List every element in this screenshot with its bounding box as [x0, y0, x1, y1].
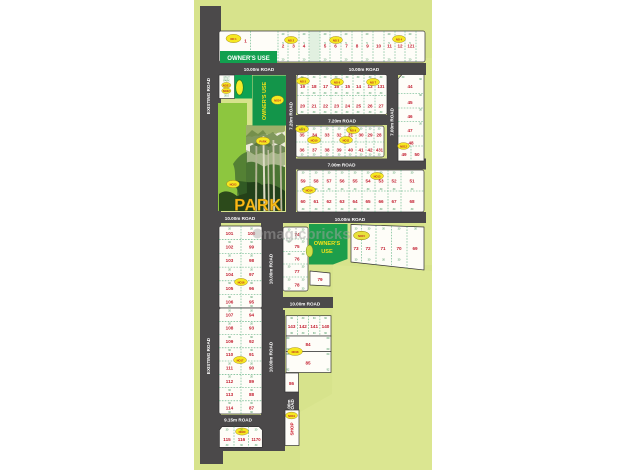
svg-text:12: 12	[397, 44, 403, 49]
svg-text:PARK: PARK	[223, 79, 230, 82]
svg-text:49: 49	[401, 152, 407, 157]
svg-text:SHOP: SHOP	[290, 422, 295, 435]
svg-text:105: 105	[226, 286, 234, 291]
svg-text:77: 77	[294, 269, 300, 274]
svg-text:131: 131	[378, 84, 386, 89]
svg-text:98: 98	[249, 258, 255, 263]
svg-text:10.00m ROAD: 10.00m ROAD	[349, 67, 380, 72]
svg-text:99: 99	[249, 245, 255, 250]
svg-text:88: 88	[249, 392, 255, 397]
svg-text:NO12: NO12	[400, 144, 407, 148]
svg-text:17: 17	[323, 84, 329, 89]
svg-text:33: 33	[324, 133, 330, 138]
svg-text:23: 23	[334, 104, 340, 109]
svg-text:3: 3	[292, 44, 295, 49]
svg-text:NO24: NO24	[274, 98, 281, 102]
svg-text:27: 27	[378, 104, 384, 109]
svg-text:9.15m ROAD: 9.15m ROAD	[224, 418, 253, 423]
svg-text:76: 76	[294, 257, 300, 262]
svg-text:114: 114	[226, 406, 234, 411]
svg-text:30: 30	[358, 133, 364, 138]
svg-text:NO 3: NO 3	[333, 38, 340, 42]
svg-text:24: 24	[345, 104, 351, 109]
svg-text:93: 93	[249, 326, 255, 331]
svg-text:NO19: NO19	[288, 414, 295, 418]
svg-text:116: 116	[238, 437, 246, 442]
svg-text:72: 72	[365, 246, 371, 251]
svg-text:OWNER'S USE: OWNER'S USE	[227, 56, 269, 62]
svg-text:115: 115	[223, 437, 231, 442]
svg-text:51: 51	[409, 179, 415, 184]
svg-text:79: 79	[317, 277, 323, 282]
svg-text:110: 110	[226, 352, 234, 357]
svg-text:91: 91	[249, 352, 255, 357]
svg-text:NO23: NO23	[230, 182, 237, 186]
svg-text:PARK: PARK	[259, 139, 266, 143]
svg-text:87: 87	[249, 406, 255, 411]
svg-text:103: 103	[226, 258, 234, 263]
svg-text:NO15: NO15	[358, 234, 365, 238]
svg-text:36: 36	[299, 148, 305, 153]
svg-text:63: 63	[339, 199, 345, 204]
svg-text:10.00m ROAD: 10.00m ROAD	[244, 67, 275, 72]
svg-text:22: 22	[323, 104, 329, 109]
svg-text:1: 1	[244, 39, 247, 44]
svg-text:10.00m ROAD: 10.00m ROAD	[290, 302, 321, 307]
svg-text:75: 75	[294, 244, 300, 249]
svg-text:55: 55	[352, 179, 358, 184]
svg-text:104: 104	[226, 272, 234, 277]
svg-text:61: 61	[313, 199, 319, 204]
svg-text:66: 66	[378, 199, 384, 204]
svg-text:NO 6: NO 6	[334, 80, 341, 84]
svg-text:108: 108	[226, 326, 234, 331]
svg-text:39: 39	[336, 148, 342, 153]
svg-text:NO 4: NO 4	[396, 37, 403, 41]
svg-text:NO 7: NO 7	[370, 80, 377, 84]
svg-text:USE: USE	[321, 249, 333, 255]
svg-text:96: 96	[249, 286, 255, 291]
svg-text:141: 141	[310, 324, 318, 329]
svg-text:97: 97	[249, 272, 255, 277]
svg-text:78: 78	[294, 283, 300, 288]
svg-text:NO11: NO11	[343, 138, 350, 142]
svg-text:92: 92	[249, 339, 255, 344]
svg-text:95: 95	[249, 300, 255, 305]
svg-text:20: 20	[300, 104, 306, 109]
svg-text:90: 90	[249, 366, 255, 371]
svg-text:54: 54	[365, 179, 371, 184]
svg-text:30.0: 30.0	[224, 95, 229, 98]
svg-text:37: 37	[312, 148, 318, 153]
svg-text:10.00m ROAD: 10.00m ROAD	[269, 253, 274, 284]
svg-text:7.20m ROAD: 7.20m ROAD	[289, 101, 294, 130]
svg-text:44: 44	[407, 84, 413, 89]
svg-text:10: 10	[376, 44, 382, 49]
svg-text:111: 111	[226, 366, 234, 371]
svg-text:NO17: NO17	[237, 358, 244, 362]
svg-text:28: 28	[376, 133, 382, 138]
svg-text:7.00m ROAD: 7.00m ROAD	[328, 163, 357, 168]
svg-text:14: 14	[356, 84, 362, 89]
svg-text:68: 68	[409, 199, 415, 204]
svg-text:38: 38	[324, 148, 330, 153]
svg-text:NO21: NO21	[223, 83, 230, 87]
svg-text:84: 84	[305, 342, 311, 347]
svg-text:18: 18	[311, 84, 317, 89]
svg-text:65: 65	[365, 199, 371, 204]
svg-text:42: 42	[367, 148, 373, 153]
svg-text:60: 60	[300, 199, 306, 204]
svg-text:86: 86	[289, 381, 295, 386]
svg-text:94: 94	[249, 313, 255, 318]
svg-text:NO22: NO22	[223, 89, 230, 93]
svg-text:6: 6	[334, 44, 337, 49]
svg-text:magicbricks: magicbricks	[263, 226, 351, 243]
svg-text:71: 71	[380, 246, 386, 251]
svg-text:59: 59	[300, 179, 306, 184]
svg-text:62: 62	[326, 199, 332, 204]
svg-text:NO10: NO10	[311, 138, 318, 142]
svg-text:EXISTING ROAD: EXISTING ROAD	[206, 77, 211, 114]
svg-text:64: 64	[352, 199, 358, 204]
svg-text:29: 29	[367, 133, 373, 138]
svg-text:NO 2: NO 2	[288, 38, 295, 42]
svg-text:41: 41	[358, 148, 364, 153]
svg-text:1170: 1170	[251, 437, 261, 442]
svg-text:106: 106	[226, 300, 234, 305]
svg-text:OWNER'S USE: OWNER'S USE	[262, 82, 268, 121]
svg-text:112: 112	[226, 379, 234, 384]
svg-text:15: 15	[345, 84, 351, 89]
svg-text:46: 46	[407, 114, 413, 119]
svg-text:70: 70	[396, 246, 402, 251]
svg-text:50: 50	[414, 152, 420, 157]
svg-text:7.00m ROAD: 7.00m ROAD	[390, 107, 395, 136]
svg-text:58: 58	[313, 179, 319, 184]
svg-text:45: 45	[407, 100, 413, 105]
svg-text:7.20m ROAD: 7.20m ROAD	[328, 119, 357, 124]
svg-text:113: 113	[226, 392, 234, 397]
svg-text:73: 73	[353, 246, 359, 251]
svg-text:PARK: PARK	[234, 197, 282, 215]
svg-text:32: 32	[336, 133, 342, 138]
svg-text:NO18: NO18	[292, 350, 299, 354]
svg-text:NO14: NO14	[306, 188, 313, 192]
svg-text:52: 52	[391, 179, 397, 184]
svg-text:107: 107	[226, 313, 234, 318]
svg-text:10.00m ROAD: 10.00m ROAD	[225, 216, 256, 221]
svg-text:NO16: NO16	[238, 280, 245, 284]
svg-text:143: 143	[288, 324, 296, 329]
svg-text:10.00m ROAD: 10.00m ROAD	[335, 217, 366, 222]
svg-text:8: 8	[356, 44, 359, 49]
svg-text:67: 67	[391, 199, 397, 204]
svg-text:NO 5: NO 5	[300, 79, 307, 83]
svg-text:NO 1: NO 1	[230, 37, 237, 41]
svg-text:431: 431	[376, 148, 384, 153]
svg-text:140: 140	[322, 324, 330, 329]
svg-text:EXISTING ROAD: EXISTING ROAD	[206, 337, 211, 374]
svg-text:35: 35	[299, 133, 305, 138]
svg-text:69: 69	[412, 246, 418, 251]
svg-text:57: 57	[326, 179, 332, 184]
svg-text:25: 25	[356, 104, 362, 109]
svg-text:56: 56	[339, 179, 345, 184]
svg-text:101: 101	[226, 231, 234, 236]
svg-text:89: 89	[249, 379, 255, 384]
svg-text:26: 26	[367, 104, 373, 109]
svg-text:109: 109	[226, 339, 234, 344]
svg-text:102: 102	[226, 245, 234, 250]
svg-text:142: 142	[299, 324, 307, 329]
svg-text:47: 47	[407, 128, 413, 133]
svg-text:NO13: NO13	[374, 174, 381, 178]
svg-text:10.00m ROAD: 10.00m ROAD	[269, 341, 274, 372]
svg-text:85: 85	[305, 361, 311, 366]
svg-text:21: 21	[311, 104, 317, 109]
svg-text:40: 40	[348, 148, 354, 153]
